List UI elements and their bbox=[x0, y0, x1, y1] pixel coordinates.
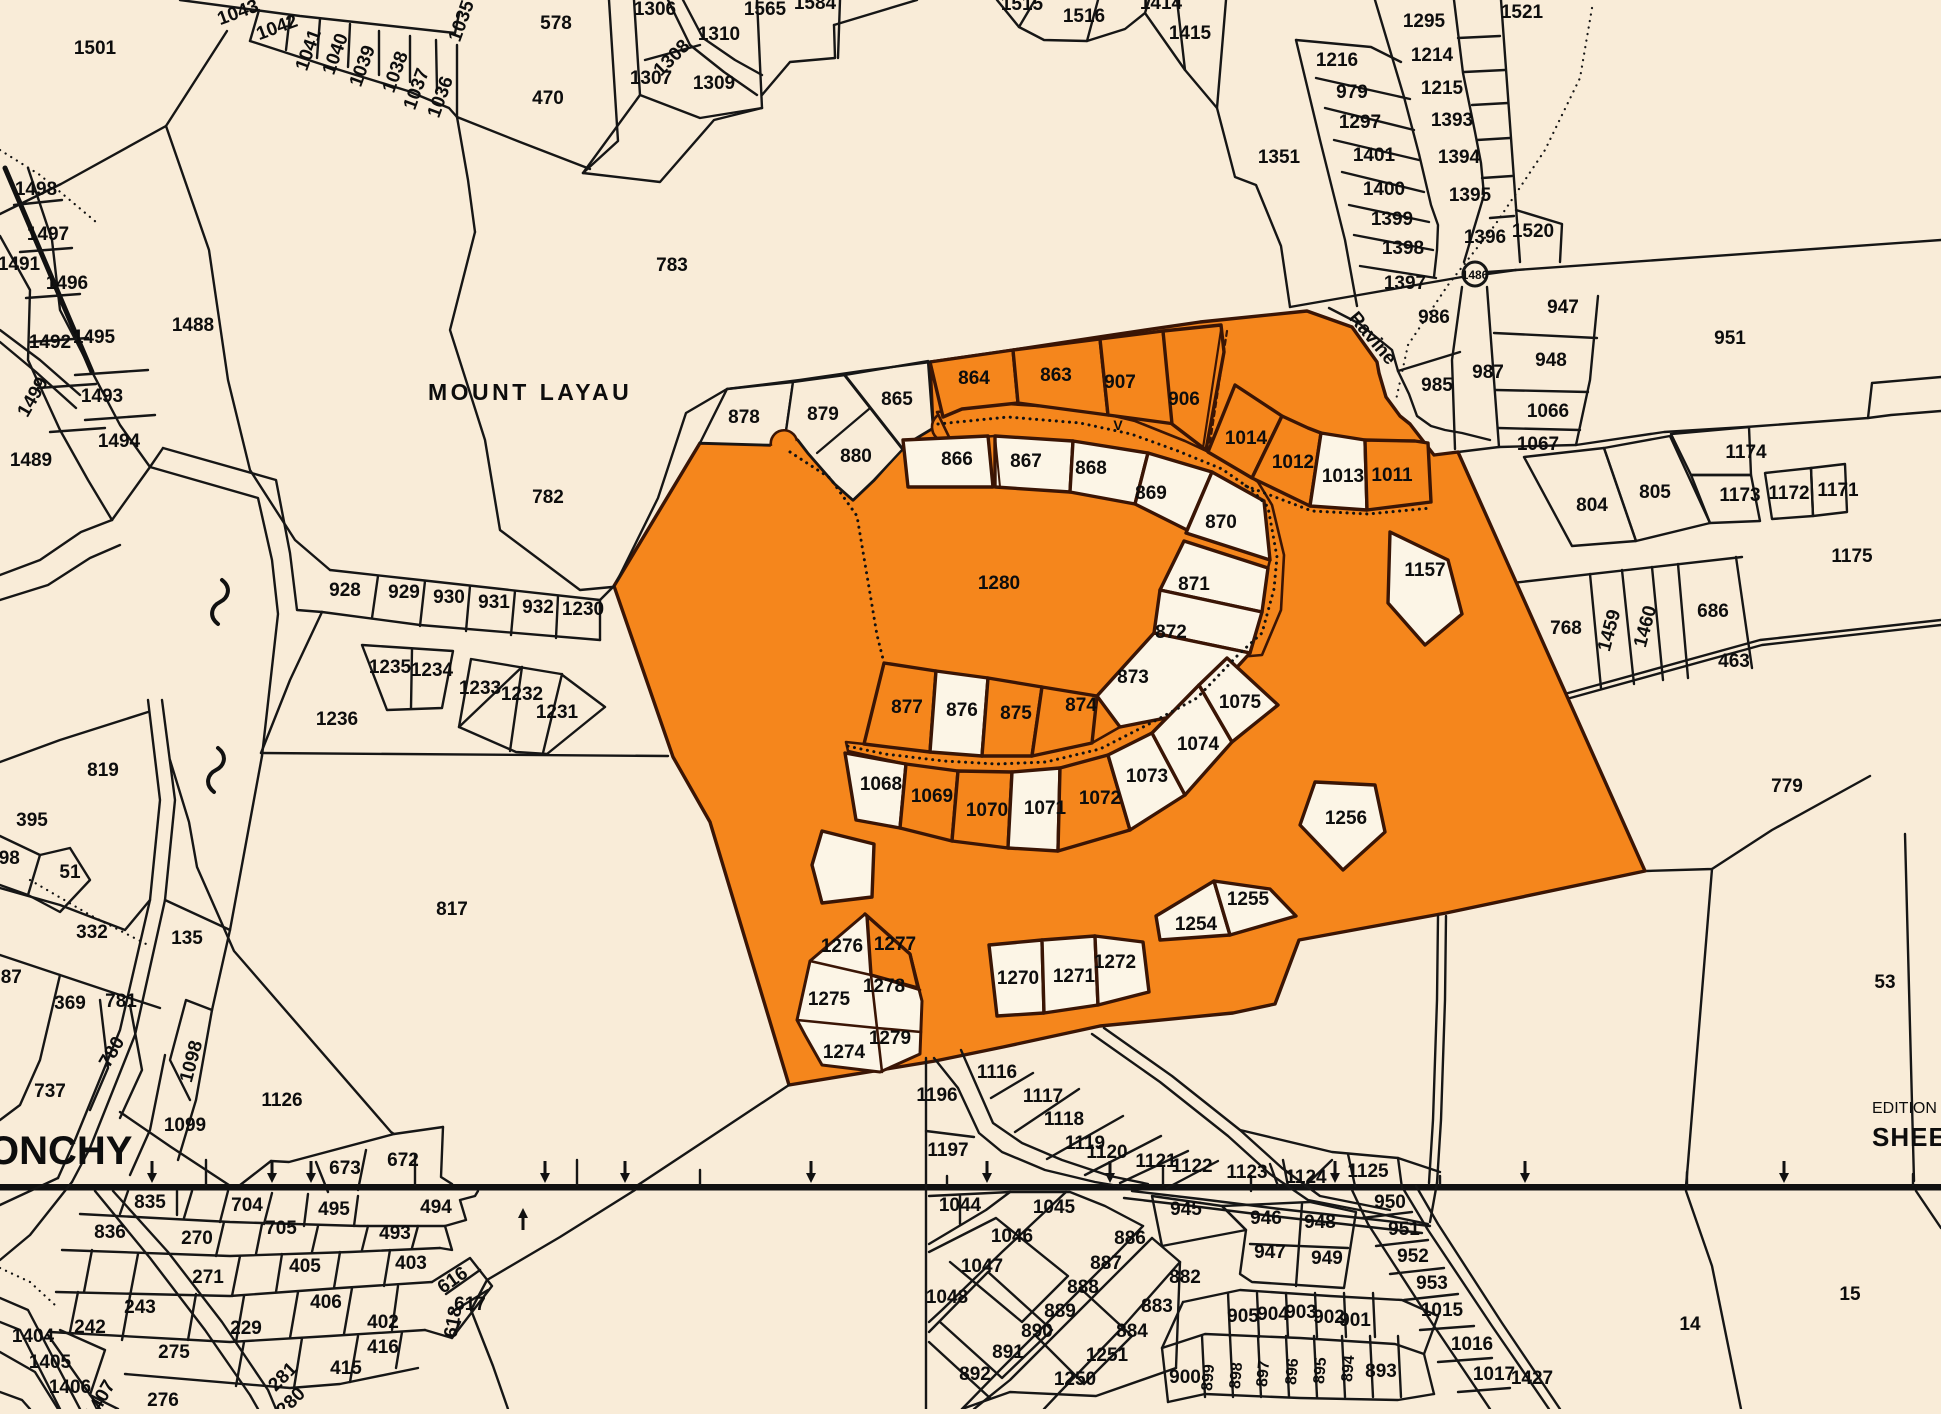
svg-text:879: 879 bbox=[807, 404, 839, 425]
svg-text:1073: 1073 bbox=[1126, 766, 1168, 787]
svg-text:893: 893 bbox=[1365, 1361, 1397, 1382]
svg-text:899: 899 bbox=[1199, 1363, 1218, 1391]
svg-text:1235: 1235 bbox=[369, 657, 412, 678]
svg-text:1486: 1486 bbox=[1462, 268, 1489, 282]
svg-text:1068: 1068 bbox=[860, 774, 902, 795]
svg-text:276: 276 bbox=[147, 1390, 179, 1409]
svg-text:782: 782 bbox=[532, 487, 564, 508]
svg-text:1045: 1045 bbox=[1033, 1197, 1076, 1218]
svg-text:898: 898 bbox=[1227, 1361, 1246, 1389]
svg-text:1070: 1070 bbox=[966, 800, 1008, 821]
svg-text:1280: 1280 bbox=[978, 573, 1020, 594]
svg-text:874: 874 bbox=[1065, 695, 1097, 716]
svg-text:1495: 1495 bbox=[73, 327, 116, 348]
svg-text:1400: 1400 bbox=[1363, 179, 1405, 200]
svg-text:1405: 1405 bbox=[29, 1352, 72, 1373]
svg-text:865: 865 bbox=[881, 389, 913, 410]
svg-text:1047: 1047 bbox=[961, 1256, 1003, 1277]
svg-text:V: V bbox=[1113, 417, 1123, 433]
svg-text:1067: 1067 bbox=[1517, 434, 1559, 455]
svg-text:950: 950 bbox=[1374, 1192, 1406, 1213]
svg-text:900: 900 bbox=[1169, 1367, 1201, 1388]
svg-text:1254: 1254 bbox=[1175, 914, 1218, 935]
svg-text:986: 986 bbox=[1418, 307, 1450, 328]
svg-text:905: 905 bbox=[1227, 1306, 1259, 1327]
svg-text:704: 704 bbox=[231, 1195, 263, 1216]
svg-text:1124: 1124 bbox=[1285, 1167, 1327, 1188]
svg-text:1172: 1172 bbox=[1768, 483, 1809, 504]
svg-text:951: 951 bbox=[1714, 328, 1746, 349]
svg-text:947: 947 bbox=[1547, 297, 1579, 318]
svg-text:1521: 1521 bbox=[1501, 2, 1544, 23]
svg-text:270: 270 bbox=[181, 1228, 213, 1249]
svg-text:1492: 1492 bbox=[29, 332, 71, 353]
svg-text:903: 903 bbox=[1285, 1302, 1317, 1323]
svg-text:405: 405 bbox=[289, 1256, 321, 1277]
svg-text:1520: 1520 bbox=[1512, 221, 1554, 242]
svg-text:1075: 1075 bbox=[1219, 692, 1262, 713]
svg-text:1277: 1277 bbox=[874, 934, 916, 955]
svg-text:705: 705 bbox=[265, 1218, 297, 1239]
svg-text:946: 946 bbox=[1250, 1208, 1282, 1229]
svg-text:406: 406 bbox=[310, 1292, 342, 1313]
svg-text:1279: 1279 bbox=[869, 1028, 911, 1049]
svg-text:1120: 1120 bbox=[1086, 1142, 1127, 1163]
svg-text:1309: 1309 bbox=[693, 73, 735, 94]
svg-text:951: 951 bbox=[1388, 1219, 1420, 1240]
svg-text:891: 891 bbox=[992, 1342, 1024, 1363]
svg-text:1516: 1516 bbox=[1063, 6, 1105, 27]
svg-text:1157: 1157 bbox=[1404, 560, 1445, 581]
svg-text:948: 948 bbox=[1304, 1212, 1336, 1233]
svg-text:402: 402 bbox=[367, 1312, 399, 1333]
svg-text:493: 493 bbox=[379, 1223, 411, 1244]
svg-text:1255: 1255 bbox=[1227, 889, 1270, 910]
svg-text:869: 869 bbox=[1135, 483, 1167, 504]
svg-text:737: 737 bbox=[34, 1081, 66, 1102]
svg-text:1072: 1072 bbox=[1079, 788, 1121, 809]
svg-text:1230: 1230 bbox=[562, 599, 604, 620]
svg-text:1234: 1234 bbox=[411, 660, 454, 681]
svg-text:1236: 1236 bbox=[316, 709, 358, 730]
svg-text:495: 495 bbox=[318, 1199, 350, 1220]
svg-text:1398: 1398 bbox=[1382, 238, 1424, 259]
svg-text:135: 135 bbox=[171, 928, 203, 949]
svg-text:1099: 1099 bbox=[164, 1115, 206, 1136]
svg-text:1272: 1272 bbox=[1094, 952, 1136, 973]
svg-text:907: 907 bbox=[1104, 372, 1136, 393]
svg-text:1415: 1415 bbox=[1169, 23, 1212, 44]
svg-text:1584: 1584 bbox=[794, 0, 837, 14]
svg-text:1497: 1497 bbox=[27, 224, 69, 245]
svg-text:1117: 1117 bbox=[1023, 1086, 1063, 1107]
svg-text:1044: 1044 bbox=[939, 1195, 982, 1216]
svg-text:787: 787 bbox=[0, 967, 22, 988]
svg-text:1278: 1278 bbox=[863, 976, 905, 997]
svg-text:1126: 1126 bbox=[261, 1090, 302, 1111]
svg-text:14: 14 bbox=[1679, 1314, 1701, 1335]
svg-text:1414: 1414 bbox=[1140, 0, 1183, 14]
svg-text:1173: 1173 bbox=[1719, 485, 1760, 506]
svg-text:895: 895 bbox=[1311, 1356, 1330, 1384]
svg-text:882: 882 bbox=[1169, 1267, 1201, 1288]
svg-text:1197: 1197 bbox=[927, 1140, 968, 1161]
svg-text:275: 275 bbox=[158, 1342, 190, 1363]
svg-text:932: 932 bbox=[522, 597, 554, 618]
svg-text:1233: 1233 bbox=[459, 678, 501, 699]
svg-text:897: 897 bbox=[1254, 1359, 1273, 1387]
svg-text:1013: 1013 bbox=[1322, 466, 1364, 487]
svg-text:1396: 1396 bbox=[1464, 227, 1506, 248]
svg-text:987: 987 bbox=[1472, 362, 1504, 383]
svg-text:867: 867 bbox=[1010, 451, 1042, 472]
svg-text:873: 873 bbox=[1117, 667, 1149, 688]
svg-text:1351: 1351 bbox=[1258, 147, 1301, 168]
svg-text:779: 779 bbox=[1771, 776, 1803, 797]
svg-text:470: 470 bbox=[532, 88, 564, 109]
svg-text:953: 953 bbox=[1416, 1273, 1448, 1294]
svg-text:1012: 1012 bbox=[1272, 452, 1314, 473]
svg-text:1069: 1069 bbox=[911, 786, 953, 807]
svg-text:894: 894 bbox=[1339, 1354, 1358, 1382]
svg-text:1048: 1048 bbox=[926, 1287, 968, 1308]
svg-text:876: 876 bbox=[946, 700, 978, 721]
svg-text:1046: 1046 bbox=[991, 1226, 1033, 1247]
svg-text:1015: 1015 bbox=[1421, 1300, 1464, 1321]
svg-text:1196: 1196 bbox=[916, 1085, 957, 1106]
svg-text:1071: 1071 bbox=[1024, 798, 1067, 819]
svg-text:1401: 1401 bbox=[1353, 145, 1396, 166]
svg-text:871: 871 bbox=[1178, 574, 1210, 595]
svg-text:686: 686 bbox=[1697, 601, 1729, 622]
svg-text:1271: 1271 bbox=[1053, 966, 1096, 987]
svg-text:1491: 1491 bbox=[0, 254, 41, 275]
svg-text:SHEET 3: SHEET 3 bbox=[1872, 1122, 1941, 1152]
svg-text:877: 877 bbox=[891, 697, 923, 718]
svg-text:1399: 1399 bbox=[1371, 209, 1413, 230]
svg-text:1123: 1123 bbox=[1226, 1162, 1267, 1183]
svg-text:1122: 1122 bbox=[1171, 1156, 1212, 1177]
svg-text:53: 53 bbox=[1874, 972, 1895, 993]
svg-text:242: 242 bbox=[74, 1317, 106, 1338]
svg-text:1256: 1256 bbox=[1325, 808, 1367, 829]
svg-text:804: 804 bbox=[1576, 495, 1608, 516]
svg-text:868: 868 bbox=[1075, 458, 1107, 479]
svg-text:819: 819 bbox=[87, 760, 119, 781]
svg-text:1297: 1297 bbox=[1339, 112, 1381, 133]
svg-text:892: 892 bbox=[959, 1364, 991, 1385]
svg-text:1116: 1116 bbox=[977, 1062, 1017, 1083]
svg-text:1404: 1404 bbox=[12, 1326, 55, 1347]
svg-text:864: 864 bbox=[958, 368, 990, 389]
svg-text:889: 889 bbox=[1044, 1301, 1076, 1322]
svg-text:1125: 1125 bbox=[1347, 1161, 1389, 1182]
svg-text:243: 243 bbox=[124, 1297, 156, 1318]
svg-text:890: 890 bbox=[1021, 1321, 1053, 1342]
svg-text:929: 929 bbox=[388, 582, 420, 603]
svg-text:395: 395 bbox=[16, 810, 48, 831]
svg-text:1251: 1251 bbox=[1086, 1345, 1129, 1366]
svg-text:949: 949 bbox=[1311, 1248, 1343, 1269]
svg-text:817: 817 bbox=[436, 899, 468, 920]
svg-text:MOUNT LAYAU: MOUNT LAYAU bbox=[428, 379, 632, 405]
svg-text:416: 416 bbox=[367, 1337, 399, 1358]
svg-text:1216: 1216 bbox=[1316, 50, 1358, 71]
svg-text:901: 901 bbox=[1339, 1310, 1371, 1331]
svg-text:870: 870 bbox=[1205, 512, 1237, 533]
svg-text:805: 805 bbox=[1639, 482, 1671, 503]
svg-text:1011: 1011 bbox=[1371, 465, 1413, 486]
svg-text:979: 979 bbox=[1336, 82, 1368, 103]
svg-text:1406: 1406 bbox=[49, 1377, 91, 1398]
svg-text:1066: 1066 bbox=[1527, 401, 1569, 422]
svg-text:1274: 1274 bbox=[823, 1042, 866, 1063]
svg-text:1489: 1489 bbox=[10, 450, 52, 471]
svg-text:1493: 1493 bbox=[81, 386, 123, 407]
svg-text:332: 332 bbox=[76, 922, 108, 943]
svg-text:1250: 1250 bbox=[1054, 1369, 1096, 1390]
svg-text:15: 15 bbox=[1839, 1284, 1861, 1305]
svg-text:1488: 1488 bbox=[172, 315, 214, 336]
svg-text:768: 768 bbox=[1550, 618, 1582, 639]
svg-text:863: 863 bbox=[1040, 365, 1072, 386]
svg-text:836: 836 bbox=[94, 1222, 126, 1243]
svg-text:463: 463 bbox=[1718, 651, 1750, 672]
svg-text:1276: 1276 bbox=[821, 936, 863, 957]
svg-text:271: 271 bbox=[192, 1267, 224, 1288]
svg-text:1394: 1394 bbox=[1438, 147, 1481, 168]
svg-text:EDITION 2: EDITION 2 bbox=[1872, 1100, 1941, 1117]
svg-text:928: 928 bbox=[329, 580, 361, 601]
svg-text:1494: 1494 bbox=[98, 431, 141, 452]
svg-text:1175: 1175 bbox=[1831, 546, 1873, 567]
svg-text:948: 948 bbox=[1535, 350, 1567, 371]
svg-text:875: 875 bbox=[1000, 703, 1032, 724]
svg-text:415: 415 bbox=[330, 1358, 362, 1379]
svg-text:1016: 1016 bbox=[1451, 1334, 1493, 1355]
svg-text:672: 672 bbox=[387, 1150, 419, 1171]
svg-text:887: 887 bbox=[1090, 1253, 1122, 1274]
svg-text:1174: 1174 bbox=[1725, 442, 1767, 463]
svg-text:952: 952 bbox=[1397, 1246, 1429, 1267]
svg-text:1214: 1214 bbox=[1411, 45, 1454, 66]
svg-text:1215: 1215 bbox=[1421, 78, 1464, 99]
svg-text:1498: 1498 bbox=[15, 179, 57, 200]
svg-text:1231: 1231 bbox=[536, 702, 579, 723]
svg-text:1275: 1275 bbox=[808, 989, 851, 1010]
svg-text:896: 896 bbox=[1283, 1357, 1302, 1385]
svg-text:878: 878 bbox=[728, 407, 760, 428]
svg-text:884: 884 bbox=[1116, 1321, 1148, 1342]
svg-text:985: 985 bbox=[1421, 375, 1453, 396]
svg-text:1496: 1496 bbox=[46, 273, 88, 294]
svg-text:930: 930 bbox=[433, 587, 465, 608]
svg-text:872: 872 bbox=[1155, 622, 1187, 643]
svg-text:866: 866 bbox=[941, 449, 973, 470]
svg-text:369: 369 bbox=[54, 993, 86, 1014]
svg-text:1393: 1393 bbox=[1431, 110, 1473, 131]
svg-text:880: 880 bbox=[840, 446, 872, 467]
svg-text:403: 403 bbox=[395, 1253, 427, 1274]
svg-text:883: 883 bbox=[1141, 1296, 1173, 1317]
svg-text:1501: 1501 bbox=[74, 38, 117, 59]
svg-text:888: 888 bbox=[1067, 1277, 1099, 1298]
svg-text:673: 673 bbox=[329, 1158, 361, 1179]
svg-text:1310: 1310 bbox=[698, 24, 740, 45]
svg-text:945: 945 bbox=[1170, 1199, 1202, 1220]
svg-text:1014: 1014 bbox=[1225, 428, 1268, 449]
svg-text:398: 398 bbox=[0, 848, 20, 869]
svg-text:1074: 1074 bbox=[1177, 734, 1220, 755]
svg-text:931: 931 bbox=[478, 592, 510, 613]
svg-text:1171: 1171 bbox=[1817, 480, 1859, 501]
svg-text:781: 781 bbox=[105, 991, 137, 1012]
svg-text:886: 886 bbox=[1114, 1228, 1146, 1249]
svg-text:1397: 1397 bbox=[1384, 273, 1426, 294]
svg-text:1295: 1295 bbox=[1403, 11, 1446, 32]
svg-text:1515: 1515 bbox=[1001, 0, 1044, 15]
svg-text:ONCHY: ONCHY bbox=[0, 1129, 133, 1173]
svg-text:1118: 1118 bbox=[1044, 1109, 1084, 1130]
svg-text:578: 578 bbox=[540, 13, 572, 34]
svg-text:783: 783 bbox=[656, 255, 688, 276]
svg-text:906: 906 bbox=[1168, 389, 1200, 410]
svg-text:835: 835 bbox=[134, 1192, 166, 1213]
svg-text:494: 494 bbox=[420, 1197, 452, 1218]
svg-text:229: 229 bbox=[230, 1318, 262, 1339]
svg-text:1427: 1427 bbox=[1511, 1368, 1553, 1389]
svg-text:947: 947 bbox=[1254, 1242, 1286, 1263]
svg-text:1395: 1395 bbox=[1449, 185, 1492, 206]
svg-text:1017: 1017 bbox=[1473, 1364, 1515, 1385]
svg-text:1565: 1565 bbox=[744, 0, 787, 20]
svg-text:1270: 1270 bbox=[997, 968, 1039, 989]
svg-text:1306: 1306 bbox=[634, 0, 676, 20]
svg-text:51: 51 bbox=[59, 862, 81, 883]
